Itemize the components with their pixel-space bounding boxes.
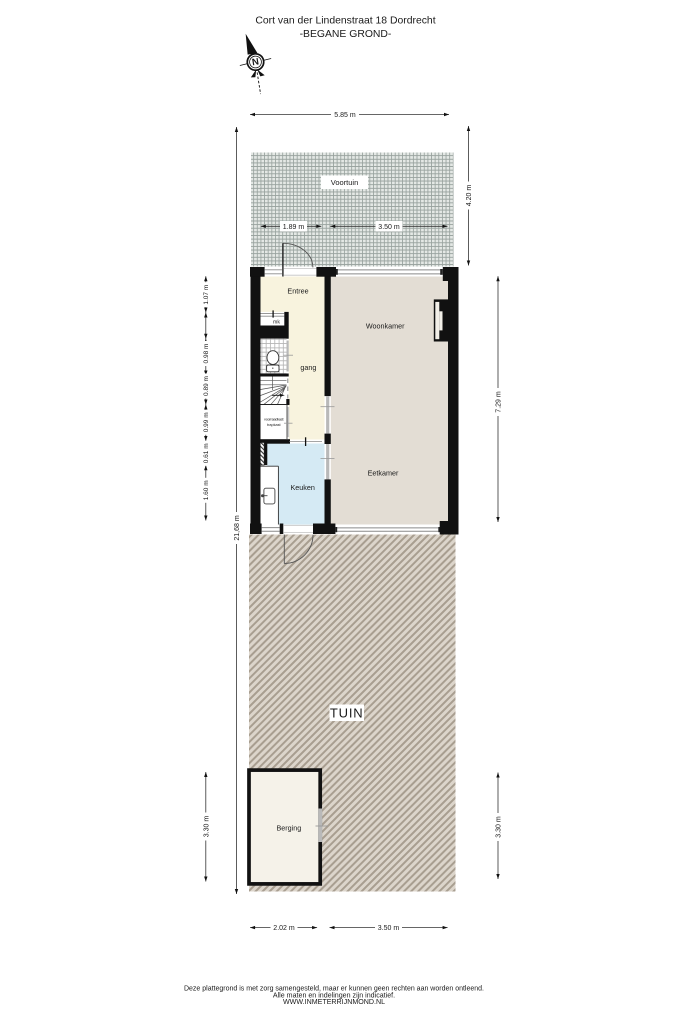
svg-text:trapkast: trapkast	[267, 423, 281, 427]
svg-text:1.07 m: 1.07 m	[203, 285, 210, 305]
svg-text:0.99 m: 0.99 m	[203, 412, 210, 432]
svg-text:0.89 m: 0.89 m	[203, 376, 210, 396]
svg-text:1.89 m: 1.89 m	[283, 224, 305, 231]
svg-text:Cort van der Lindenstraat 18 D: Cort van der Lindenstraat 18 Dordrecht	[255, 16, 435, 27]
svg-text:Entree: Entree	[287, 286, 308, 295]
svg-text:Woonkamer: Woonkamer	[366, 322, 405, 331]
svg-text:3.50 m: 3.50 m	[378, 925, 400, 932]
svg-text:WWW.INMETERRIJNMOND.NL: WWW.INMETERRIJNMOND.NL	[283, 998, 385, 1006]
svg-text:-BEGANE GROND-: -BEGANE GROND-	[300, 29, 392, 40]
svg-text:21,68 m: 21,68 m	[234, 515, 241, 540]
svg-text:TUIN: TUIN	[330, 705, 364, 720]
svg-text:Voortuin: Voortuin	[331, 178, 359, 187]
svg-text:mk: mk	[273, 320, 280, 326]
svg-text:3.30 m: 3.30 m	[496, 816, 503, 838]
svg-text:3.50 m: 3.50 m	[378, 224, 400, 231]
svg-text:Berging: Berging	[277, 824, 302, 833]
svg-text:1.60 m: 1.60 m	[203, 480, 210, 500]
svg-text:Keuken: Keuken	[291, 483, 315, 492]
svg-text:Eetkamer: Eetkamer	[368, 468, 399, 477]
svg-text:gang: gang	[300, 363, 316, 372]
svg-text:3.30 m: 3.30 m	[203, 816, 210, 838]
svg-text:7.29 m: 7.29 m	[496, 391, 503, 413]
svg-text:4.20 m: 4.20 m	[466, 185, 473, 207]
svg-text:voorraadkast: voorraadkast	[264, 418, 284, 422]
svg-text:0.98 m: 0.98 m	[203, 344, 210, 364]
svg-text:0.61 m: 0.61 m	[203, 443, 210, 463]
svg-text:5.85 m: 5.85 m	[334, 112, 356, 119]
svg-text:2.02 m: 2.02 m	[273, 925, 295, 932]
